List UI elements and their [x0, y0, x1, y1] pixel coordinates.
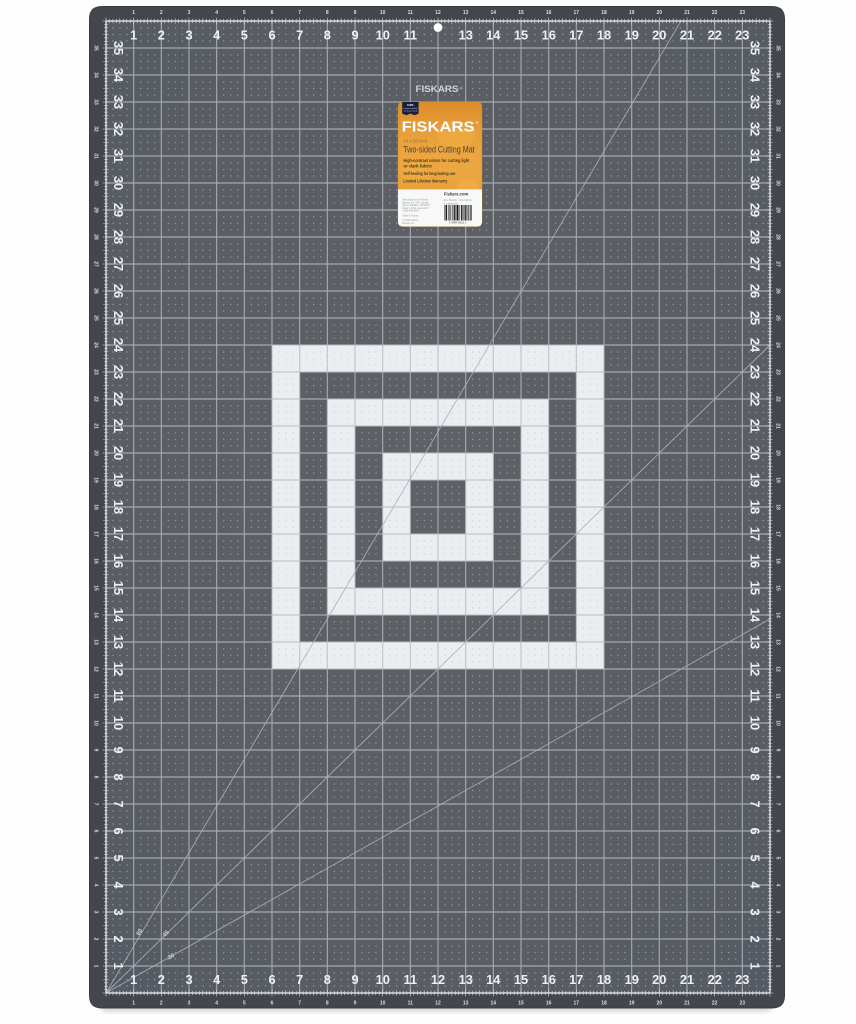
svg-text:20: 20	[748, 446, 763, 460]
svg-text:26: 26	[775, 288, 781, 294]
svg-text:21: 21	[684, 1001, 690, 1007]
svg-text:26: 26	[748, 284, 763, 298]
svg-text:13: 13	[459, 972, 473, 987]
svg-text:19: 19	[775, 477, 781, 483]
svg-text:7: 7	[296, 28, 303, 43]
svg-text:5: 5	[775, 857, 781, 860]
svg-text:35: 35	[748, 41, 763, 55]
svg-text:17: 17	[93, 531, 99, 537]
svg-text:23: 23	[735, 28, 749, 43]
svg-text:13: 13	[93, 639, 99, 645]
svg-text:12: 12	[111, 662, 126, 676]
svg-text:22: 22	[712, 10, 718, 16]
svg-text:6: 6	[748, 827, 763, 834]
svg-text:9: 9	[748, 746, 763, 753]
svg-text:11: 11	[775, 693, 781, 699]
svg-text:2: 2	[158, 28, 165, 43]
svg-text:FISKARS: FISKARS	[416, 84, 459, 94]
svg-text:12: 12	[435, 10, 441, 16]
svg-text:19: 19	[625, 28, 639, 43]
svg-text:13: 13	[463, 10, 469, 16]
svg-text:17: 17	[569, 28, 583, 43]
svg-text:22: 22	[111, 392, 126, 406]
svg-text:4: 4	[215, 1001, 218, 1007]
svg-text:Made in USA, questions?: Made in USA, questions?	[403, 207, 430, 210]
svg-text:18: 18	[775, 504, 781, 510]
svg-text:1: 1	[775, 965, 781, 968]
svg-text:5: 5	[243, 10, 246, 16]
svg-text:8: 8	[324, 972, 331, 987]
svg-text:27: 27	[111, 257, 126, 271]
svg-text:30: 30	[775, 180, 781, 186]
svg-text:© 2015 Fiskars: © 2015 Fiskars	[403, 219, 419, 222]
svg-text:11: 11	[404, 972, 418, 987]
svg-text:26: 26	[111, 284, 126, 298]
svg-text:27: 27	[775, 261, 781, 267]
svg-text:8: 8	[326, 1001, 329, 1007]
svg-text:17: 17	[111, 527, 126, 541]
svg-text:Fiskars.com: Fiskars.com	[444, 192, 469, 197]
svg-text:29: 29	[93, 207, 99, 213]
svg-text:17: 17	[574, 10, 580, 16]
svg-text:34: 34	[775, 72, 781, 78]
svg-text:12: 12	[775, 666, 781, 672]
svg-text:100%: 100%	[407, 103, 414, 107]
svg-text:4: 4	[111, 881, 126, 889]
svg-text:15: 15	[775, 585, 781, 591]
svg-text:1: 1	[130, 972, 137, 987]
svg-text:13: 13	[459, 28, 473, 43]
svg-text:18: 18	[111, 500, 126, 514]
svg-text:2: 2	[775, 938, 781, 941]
svg-text:18: 18	[601, 1001, 607, 1007]
svg-text:11: 11	[408, 1001, 414, 1007]
svg-text:Brands, Inc.: Brands, Inc.	[403, 222, 416, 225]
svg-text:8: 8	[775, 776, 781, 779]
svg-text:28: 28	[748, 230, 763, 244]
svg-text:21: 21	[748, 419, 763, 433]
svg-text:2: 2	[160, 10, 163, 16]
svg-text:Limited Lifetime Warranty: Limited Lifetime Warranty	[403, 178, 447, 183]
svg-text:14: 14	[775, 612, 781, 618]
svg-text:30: 30	[748, 176, 763, 190]
svg-text:10: 10	[748, 716, 763, 730]
svg-text:17: 17	[748, 527, 763, 541]
svg-text:21: 21	[680, 28, 694, 43]
svg-text:1: 1	[111, 962, 126, 969]
svg-text:16: 16	[546, 10, 552, 16]
svg-text:9: 9	[775, 749, 781, 752]
svg-text:32: 32	[775, 126, 781, 132]
svg-text:0 78484 08612 3: 0 78484 08612 3	[449, 223, 467, 225]
svg-text:34: 34	[93, 72, 99, 78]
svg-text:1-866-348-5661: 1-866-348-5661	[403, 211, 420, 213]
svg-text:7: 7	[111, 800, 126, 807]
svg-text:9: 9	[351, 28, 358, 43]
svg-text:22: 22	[748, 392, 763, 406]
svg-text:Self-healing for long-lasting: Self-healing for long-lasting use	[403, 171, 455, 176]
svg-text:25: 25	[775, 315, 781, 321]
svg-text:12: 12	[93, 666, 99, 672]
svg-text:33: 33	[93, 99, 99, 105]
svg-text:14: 14	[491, 10, 497, 16]
svg-text:6: 6	[271, 10, 274, 16]
svg-text:18: 18	[597, 28, 611, 43]
svg-text:3: 3	[775, 911, 781, 914]
svg-text:23: 23	[735, 972, 749, 987]
svg-text:Two-sided Cutting Mat: Two-sided Cutting Mat	[403, 143, 475, 154]
svg-text:15: 15	[111, 581, 126, 595]
svg-text:24: 24	[748, 338, 763, 353]
svg-text:20: 20	[93, 450, 99, 456]
svg-text:®: ®	[476, 120, 479, 125]
svg-text:6: 6	[93, 830, 99, 833]
svg-text:23: 23	[740, 10, 746, 16]
svg-text:22: 22	[775, 396, 781, 402]
svg-text:13: 13	[775, 639, 781, 645]
svg-text:16: 16	[748, 554, 763, 568]
svg-text:5: 5	[111, 854, 126, 861]
svg-text:13: 13	[111, 635, 126, 649]
svg-text:16: 16	[93, 558, 99, 564]
svg-text:20: 20	[652, 972, 666, 987]
svg-text:6: 6	[268, 28, 275, 43]
svg-text:21: 21	[111, 419, 126, 433]
svg-text:11: 11	[111, 689, 126, 703]
svg-text:12: 12	[748, 662, 763, 676]
svg-text:1: 1	[132, 1001, 135, 1007]
svg-text:25: 25	[93, 315, 99, 321]
svg-text:23: 23	[748, 365, 763, 379]
svg-text:19: 19	[629, 1001, 635, 1007]
svg-text:23: 23	[775, 369, 781, 375]
svg-text:2: 2	[111, 935, 126, 942]
svg-text:34: 34	[748, 68, 763, 83]
svg-text:19: 19	[629, 10, 635, 16]
svg-text:3: 3	[748, 908, 763, 915]
svg-text:scissors brand: scissors brand	[404, 110, 418, 113]
svg-text:9: 9	[354, 10, 357, 16]
svg-text:®: ®	[460, 86, 463, 91]
svg-text:5: 5	[241, 972, 248, 987]
svg-text:32: 32	[93, 126, 99, 132]
svg-text:29: 29	[111, 203, 126, 217]
svg-text:8: 8	[326, 10, 329, 16]
svg-text:Street, Madison, WI 53718: Street, Madison, WI 53718	[403, 204, 431, 207]
svg-text:3: 3	[188, 1001, 191, 1007]
svg-text:10: 10	[376, 28, 390, 43]
svg-text:24: 24	[93, 342, 99, 348]
svg-text:30: 30	[111, 176, 126, 190]
svg-text:4: 4	[93, 884, 99, 887]
svg-text:12: 12	[435, 1001, 441, 1007]
svg-text:4: 4	[775, 884, 781, 887]
svg-text:4: 4	[213, 972, 221, 987]
svg-text:9: 9	[111, 746, 126, 753]
svg-text:35: 35	[775, 45, 781, 51]
svg-text:33: 33	[111, 95, 126, 109]
svg-text:2: 2	[160, 1001, 163, 1007]
svg-text:8: 8	[111, 773, 126, 780]
svg-text:23: 23	[740, 1001, 746, 1007]
svg-text:27: 27	[93, 261, 99, 267]
svg-text:28: 28	[775, 234, 781, 240]
svg-text:23: 23	[111, 365, 126, 379]
svg-text:5: 5	[241, 28, 248, 43]
svg-text:Brands, Inc. 2537 Daniels: Brands, Inc. 2537 Daniels	[403, 201, 430, 204]
svg-text:FISKARS: FISKARS	[402, 119, 475, 136]
svg-text:29: 29	[775, 207, 781, 213]
svg-text:8: 8	[324, 28, 331, 43]
svg-text:17: 17	[574, 1001, 580, 1007]
svg-text:14: 14	[486, 28, 501, 43]
svg-text:21: 21	[684, 10, 690, 16]
svg-text:15: 15	[514, 28, 528, 43]
svg-text:18: 18	[597, 972, 611, 987]
svg-text:22: 22	[93, 396, 99, 402]
svg-text:17: 17	[775, 531, 781, 537]
svg-text:14: 14	[748, 608, 763, 623]
svg-text:1: 1	[748, 962, 763, 969]
svg-text:5: 5	[243, 1001, 246, 1007]
svg-text:2: 2	[748, 935, 763, 942]
svg-text:13: 13	[748, 635, 763, 649]
svg-text:11: 11	[748, 689, 763, 703]
svg-text:12: 12	[431, 972, 445, 987]
svg-text:26: 26	[93, 288, 99, 294]
svg-text:3: 3	[185, 972, 192, 987]
svg-text:3: 3	[188, 10, 191, 16]
svg-text:14: 14	[491, 1001, 497, 1007]
svg-text:11: 11	[404, 28, 418, 43]
svg-text:14: 14	[93, 612, 99, 618]
svg-text:24: 24	[775, 342, 781, 348]
svg-text:20: 20	[657, 1001, 663, 1007]
svg-text:15: 15	[518, 10, 524, 16]
svg-text:19: 19	[93, 477, 99, 483]
svg-text:25: 25	[748, 311, 763, 325]
svg-text:14: 14	[111, 608, 126, 623]
svg-text:20: 20	[775, 450, 781, 456]
svg-text:23: 23	[93, 369, 99, 375]
svg-text:9: 9	[354, 1001, 357, 1007]
svg-text:31: 31	[748, 149, 763, 163]
svg-text:24 x 36 inch 61 x 91 cm: 24 x 36 inch 61 x 91 cm	[444, 199, 472, 202]
svg-text:10: 10	[111, 716, 126, 730]
svg-text:32: 32	[111, 122, 126, 136]
svg-text:4: 4	[215, 10, 218, 16]
svg-text:18: 18	[601, 10, 607, 16]
svg-text:15: 15	[514, 972, 528, 987]
svg-text:5: 5	[93, 857, 99, 860]
svg-text:7: 7	[298, 10, 301, 16]
svg-text:13: 13	[463, 1001, 469, 1007]
svg-text:5: 5	[748, 854, 763, 861]
svg-text:31: 31	[775, 153, 781, 159]
svg-text:6: 6	[111, 827, 126, 834]
svg-text:7: 7	[748, 800, 763, 807]
svg-text:19: 19	[111, 473, 126, 487]
svg-text:orange-handled: orange-handled	[403, 107, 418, 110]
svg-text:6: 6	[775, 830, 781, 833]
svg-text:10: 10	[93, 720, 99, 726]
svg-text:17: 17	[569, 972, 583, 987]
svg-text:20: 20	[652, 28, 666, 43]
svg-text:28: 28	[111, 230, 126, 244]
svg-text:22: 22	[708, 972, 722, 987]
svg-text:11: 11	[93, 693, 99, 699]
svg-text:Made in Taiwan: Made in Taiwan	[403, 216, 420, 218]
svg-text:6: 6	[271, 1001, 274, 1007]
svg-text:33: 33	[748, 95, 763, 109]
svg-text:29: 29	[748, 203, 763, 217]
svg-text:33: 33	[775, 99, 781, 105]
svg-text:3: 3	[185, 28, 192, 43]
svg-text:34: 34	[111, 68, 126, 83]
svg-text:10: 10	[376, 972, 390, 987]
svg-text:4: 4	[748, 881, 763, 889]
svg-text:20: 20	[657, 10, 663, 16]
svg-text:High-contrast colors for cutti: High-contrast colors for cutting light	[403, 158, 469, 163]
svg-text:28: 28	[93, 234, 99, 240]
svg-text:15: 15	[748, 581, 763, 595]
svg-text:10: 10	[775, 720, 781, 726]
svg-text:19: 19	[748, 473, 763, 487]
svg-text:22: 22	[708, 28, 722, 43]
svg-text:15: 15	[93, 585, 99, 591]
svg-text:20: 20	[111, 446, 126, 460]
svg-text:7: 7	[775, 803, 781, 806]
svg-text:11: 11	[408, 10, 414, 16]
svg-text:21: 21	[93, 423, 99, 429]
svg-text:3: 3	[93, 911, 99, 914]
svg-text:27: 27	[748, 257, 763, 271]
svg-text:1: 1	[130, 28, 137, 43]
svg-text:35: 35	[93, 45, 99, 51]
svg-text:3: 3	[111, 908, 126, 915]
svg-text:21: 21	[680, 972, 694, 987]
svg-text:2: 2	[93, 938, 99, 941]
svg-text:4: 4	[213, 28, 221, 43]
svg-text:15: 15	[518, 1001, 524, 1007]
svg-text:18: 18	[93, 504, 99, 510]
svg-text:7: 7	[93, 803, 99, 806]
svg-text:10: 10	[380, 10, 386, 16]
svg-text:6: 6	[268, 972, 275, 987]
svg-text:1: 1	[132, 10, 135, 16]
svg-text:16: 16	[542, 28, 556, 43]
svg-text:8: 8	[93, 776, 99, 779]
svg-text:10: 10	[380, 1001, 386, 1007]
svg-text:8: 8	[748, 773, 763, 780]
svg-text:16: 16	[111, 554, 126, 568]
svg-text:32: 32	[748, 122, 763, 136]
svg-text:31: 31	[93, 153, 99, 159]
svg-text:2: 2	[158, 972, 165, 987]
svg-text:Manufactured for Fiskars: Manufactured for Fiskars	[403, 199, 429, 202]
svg-text:25: 25	[111, 311, 126, 325]
svg-text:14: 14	[486, 972, 501, 987]
svg-text:9: 9	[93, 749, 99, 752]
svg-text:16: 16	[546, 1001, 552, 1007]
svg-text:35: 35	[111, 41, 126, 55]
svg-text:16: 16	[775, 558, 781, 564]
svg-text:24: 24	[111, 338, 126, 353]
svg-text:16: 16	[542, 972, 556, 987]
svg-text:9: 9	[351, 972, 358, 987]
svg-text:19: 19	[625, 972, 639, 987]
svg-text:21: 21	[775, 423, 781, 429]
svg-text:18: 18	[748, 500, 763, 514]
svg-text:31: 31	[111, 149, 126, 163]
svg-text:22: 22	[712, 1001, 718, 1007]
svg-text:1: 1	[93, 965, 99, 968]
svg-text:or dark fabric: or dark fabric	[403, 164, 432, 169]
svg-text:30: 30	[93, 180, 99, 186]
svg-text:7: 7	[296, 972, 303, 987]
svg-text:7: 7	[298, 1001, 301, 1007]
